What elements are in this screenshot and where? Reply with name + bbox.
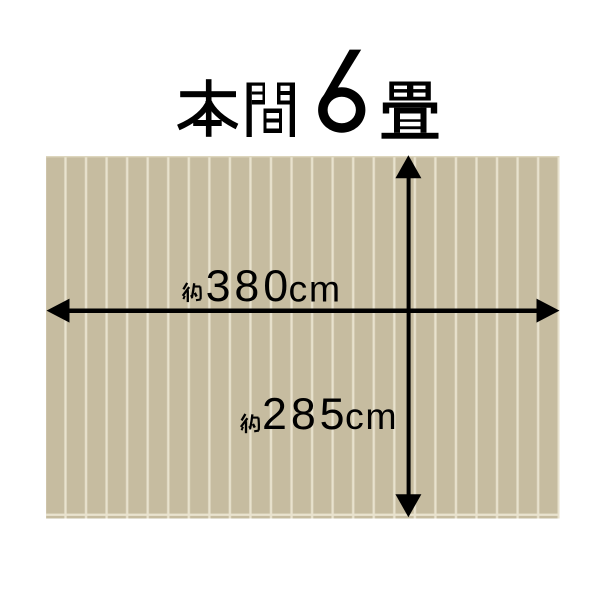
svg-text:cm: cm [345,395,398,437]
svg-text:380: 380 [206,261,292,311]
svg-text:cm: cm [289,267,342,309]
svg-text:285: 285 [262,389,348,439]
